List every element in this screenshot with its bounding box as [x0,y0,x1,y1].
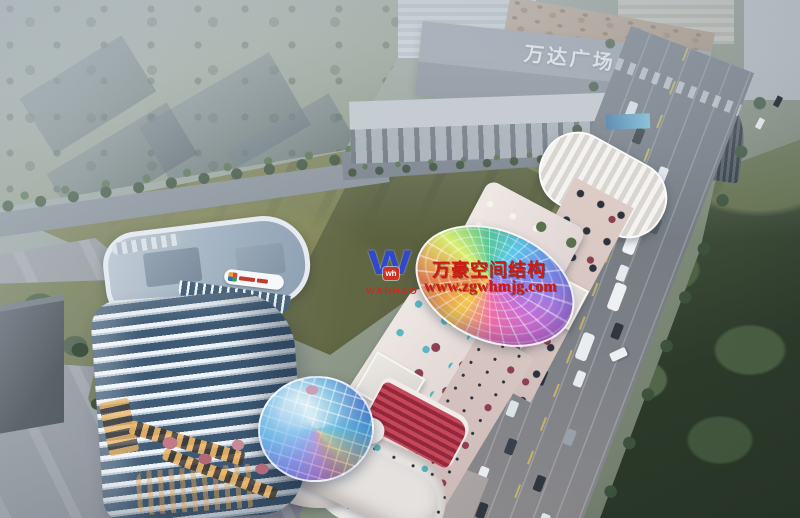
wanhao-logo-name: WANHAO [366,286,418,297]
watermark: W wh WANHAO 万豪空间结构 www.zgwhmjg.com [366,252,586,314]
dark-industrial-building [0,294,64,433]
flowering-trees [150,425,280,487]
tower-logo-text [257,278,268,283]
storefront-banner [606,113,650,130]
wanhao-logo-badge: wh [383,267,399,280]
rendering-scene: 万达广场 [0,0,800,518]
flowering-tree [302,382,322,398]
watermark-website-text: www.zgwhmjg.com [424,278,556,296]
tower-logo-text [239,276,255,282]
tower-logo-icon [228,272,238,282]
